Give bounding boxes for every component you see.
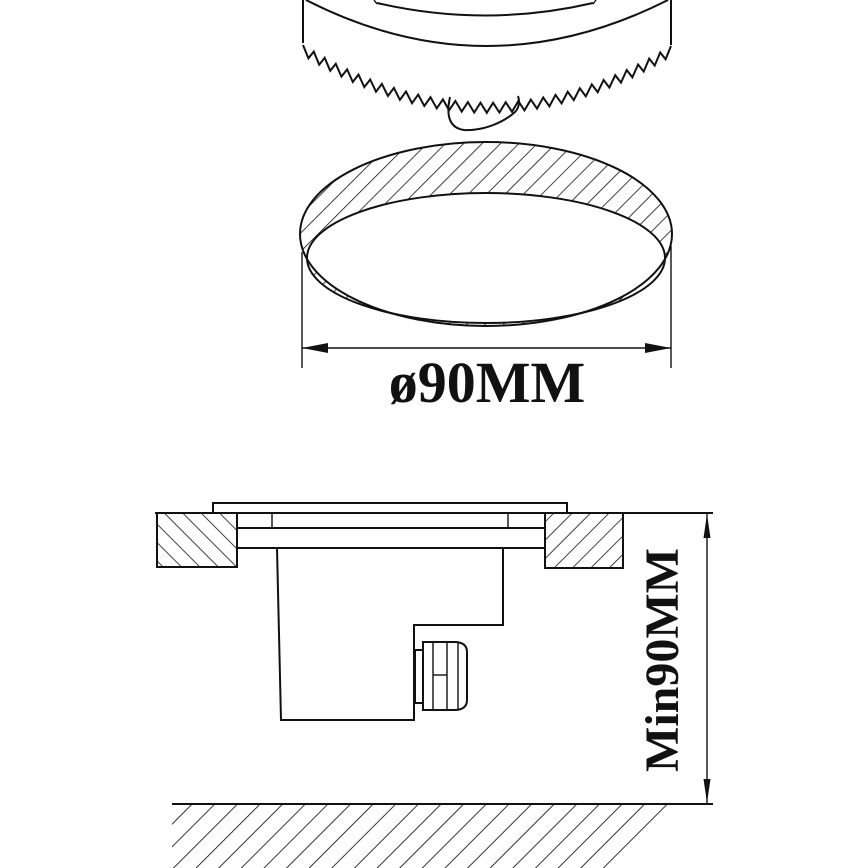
cable-gland-body	[423, 642, 467, 710]
cutout-hole-view	[300, 142, 672, 326]
surface-block-right	[545, 513, 623, 568]
lens-arc-end-ticks	[374, 0, 596, 4]
bezel-seam-ticks	[272, 513, 508, 528]
spring-clip-tab	[448, 96, 519, 130]
ground-hatch	[172, 804, 688, 868]
ground-section	[172, 804, 713, 868]
trim-flange	[213, 503, 567, 513]
diameter-label: ø90MM	[389, 350, 586, 415]
depth-arrow-top	[704, 514, 711, 538]
cutout-rim-hatch	[300, 142, 672, 326]
diameter-arrow-right	[645, 343, 671, 353]
cable-gland-flange	[415, 650, 423, 703]
technical-drawing-page: ø90MM Min90MM	[0, 0, 868, 868]
body-edge-arc	[306, 0, 668, 46]
depth-arrow-bottom	[704, 779, 711, 803]
depth-dimension: Min90MM	[636, 514, 711, 803]
fixture-body-outline	[277, 548, 503, 720]
installation-drawing-canvas: ø90MM Min90MM	[0, 0, 868, 868]
cable-gland-ribs	[433, 642, 458, 710]
cutout-inner-ellipse	[307, 193, 665, 323]
diameter-dimension: ø90MM	[302, 246, 671, 415]
knurled-edge-zigzag	[303, 45, 671, 113]
lens-edge-arc	[377, 3, 593, 16]
fixture-top-view	[303, 0, 671, 130]
depth-label: Min90MM	[636, 548, 689, 772]
surface-block-left	[157, 513, 237, 567]
installation-section-view	[155, 503, 713, 720]
diameter-arrow-left	[302, 343, 328, 353]
